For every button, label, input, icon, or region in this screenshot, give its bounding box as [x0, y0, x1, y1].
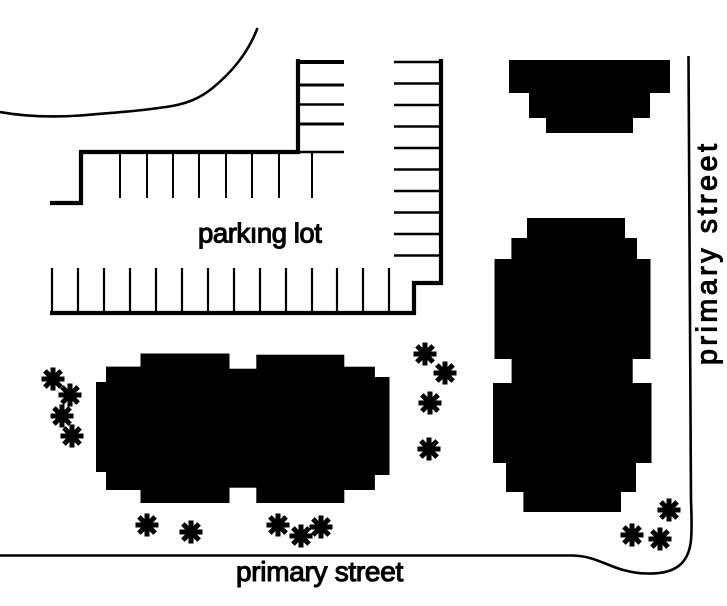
svg-text:parkıng lot: parkıng lot: [198, 218, 322, 249]
svg-text:primary street: primary street: [236, 556, 403, 587]
svg-text:primary street: primary street: [692, 140, 724, 365]
